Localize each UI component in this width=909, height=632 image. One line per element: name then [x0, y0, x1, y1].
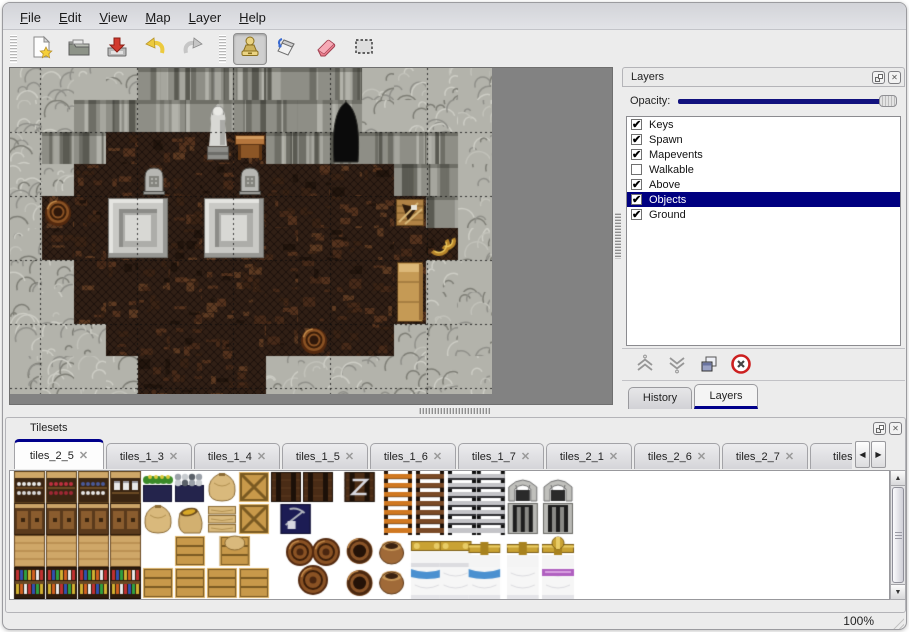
tab-close-icon[interactable]: ✕ [345, 450, 354, 463]
dock-tab-layers[interactable]: Layers [694, 384, 758, 409]
stamp-icon [237, 34, 263, 63]
toolbar [3, 30, 906, 67]
tab-close-icon[interactable]: ✕ [79, 449, 88, 462]
layer-visibility-checkbox[interactable]: ✔ [631, 209, 642, 220]
scroll-up-button[interactable]: ▲ [891, 471, 905, 486]
layer-list: ✔Keys✔Spawn✔MapeventsWalkable✔Above✔Obje… [626, 116, 901, 346]
zoom-level: 100% [843, 614, 874, 628]
menu-layer[interactable]: Layer [180, 9, 231, 26]
layer-label: Mapevents [649, 149, 703, 161]
resize-grip[interactable] [884, 617, 904, 630]
layer-label: Keys [649, 119, 673, 131]
layer-label: Above [649, 179, 680, 191]
tileset-tab-tiles_[interactable]: tiles_✕ [810, 443, 852, 469]
tileset-tab-tiles_1_5[interactable]: tiles_1_5✕ [282, 443, 368, 469]
tileset-tab-tiles_1_6[interactable]: tiles_1_6✕ [370, 443, 456, 469]
tab-close-icon[interactable]: ✕ [169, 450, 178, 463]
close-panel-icon[interactable]: ✕ [888, 71, 901, 84]
layer-visibility-checkbox[interactable]: ✔ [631, 134, 642, 145]
opacity-slider[interactable] [678, 94, 897, 108]
layers-panel-title: Layers [623, 71, 872, 83]
eraser-tool-button[interactable] [309, 33, 343, 65]
tab-scroll-buttons: ◀ ▶ [854, 441, 886, 468]
scroll-down-button[interactable]: ▼ [891, 584, 905, 599]
map-view[interactable] [9, 67, 613, 405]
layer-visibility-checkbox[interactable]: ✔ [631, 179, 642, 190]
tileset-tab-tiles_2_5[interactable]: tiles_2_5✕ [14, 439, 104, 469]
menu-view[interactable]: View [90, 9, 136, 26]
tab-close-icon[interactable]: ✕ [697, 450, 706, 463]
opacity-label: Opacity: [622, 95, 678, 107]
tab-close-icon[interactable]: ✕ [433, 450, 442, 463]
tab-close-icon[interactable]: ✕ [609, 450, 618, 463]
tab-close-icon[interactable]: ✕ [257, 450, 266, 463]
layers-panel-titlebar: Layers ✕ [622, 67, 905, 87]
undo-icon [142, 34, 168, 63]
float-panel-icon[interactable] [872, 71, 885, 84]
opacity-slider-track[interactable] [678, 99, 897, 104]
raise-layer-button[interactable] [632, 353, 658, 377]
eraser-icon [313, 34, 339, 63]
raise-layer-icon [634, 363, 656, 378]
layer-visibility-checkbox[interactable]: ✔ [631, 149, 642, 160]
save-button[interactable] [100, 33, 134, 65]
tab-close-icon[interactable]: ✕ [785, 450, 794, 463]
tileset-tab-label: tiles_2_6 [648, 451, 692, 463]
open-button[interactable] [62, 33, 96, 65]
layer-label: Objects [649, 194, 686, 206]
layer-visibility-checkbox[interactable]: ✔ [631, 119, 642, 130]
tileset-tab-label: tiles_1_5 [296, 451, 340, 463]
menu-bar: FileEditViewMapLayerHelp [3, 3, 906, 30]
duplicate-layer-button[interactable] [696, 353, 722, 377]
tileset-tab-label: tiles_2_1 [560, 451, 604, 463]
layer-label: Ground [649, 209, 686, 221]
redo-icon [180, 34, 206, 63]
tilesets-titlebar: Tilesets ✕ [6, 418, 905, 438]
tileset-canvas[interactable] [10, 471, 874, 599]
tab-close-icon[interactable]: ✕ [521, 450, 530, 463]
tileset-tab-label: tiles_1_4 [208, 451, 252, 463]
save-icon [104, 34, 130, 63]
menu-help[interactable]: Help [230, 9, 275, 26]
layer-actions [622, 348, 905, 381]
tileset-tab-tiles_2_1[interactable]: tiles_2_1✕ [546, 443, 632, 469]
layer-visibility-checkbox[interactable]: ✔ [631, 194, 642, 205]
splitter-grip[interactable] [615, 213, 621, 259]
tileset-tab-label: tiles_2_7 [736, 451, 780, 463]
tileset-tab-label: tiles_1_6 [384, 451, 428, 463]
opacity-slider-handle[interactable] [879, 95, 897, 107]
dock-tab-history[interactable]: History [628, 387, 692, 409]
layer-row-spawn[interactable]: ✔Spawn [627, 132, 900, 147]
lower-layer-button[interactable] [664, 353, 690, 377]
opacity-row: Opacity: [622, 88, 905, 114]
layer-row-walkable[interactable]: Walkable [627, 162, 900, 177]
scrollbar-thumb[interactable] [892, 487, 904, 583]
duplicate-layer-icon [698, 363, 720, 378]
layer-row-mapevents[interactable]: ✔Mapevents [627, 147, 900, 162]
tileset-scrollbar[interactable]: ▲ ▼ [890, 470, 906, 600]
layer-row-ground[interactable]: ✔Ground [627, 207, 900, 222]
layer-visibility-checkbox[interactable] [631, 164, 642, 175]
tileset-tab-label: tiles_ [833, 451, 852, 463]
toolbar-drag-handle[interactable] [219, 35, 226, 63]
menu-file[interactable]: File [11, 9, 50, 26]
status-bar: 100% [3, 613, 906, 630]
layers-panel: Layers ✕ Opacity: ✔Keys✔Spawn✔MapeventsW… [622, 67, 905, 415]
layer-label: Spawn [649, 134, 683, 146]
tilesets-panel: Tilesets ✕ tiles_2_5✕tiles_1_3✕tiles_1_4… [5, 417, 906, 613]
stamp-tool-button[interactable] [233, 33, 267, 65]
app-window: FileEditViewMapLayerHelp Layers ✕ Opacit… [2, 2, 907, 630]
layer-label: Walkable [649, 164, 694, 176]
float-panel-icon[interactable] [873, 422, 886, 435]
redo-button[interactable] [176, 33, 210, 65]
tileset-tab-tiles_1_4[interactable]: tiles_1_4✕ [194, 443, 280, 469]
map-canvas[interactable] [10, 68, 492, 394]
tab-scroll-right-button[interactable]: ▶ [871, 441, 886, 468]
menu-map[interactable]: Map [136, 9, 179, 26]
vertical-splitter[interactable] [613, 67, 622, 405]
close-panel-icon[interactable]: ✕ [889, 422, 902, 435]
tileset-tab-label: tiles_1_3 [120, 451, 164, 463]
toolbar-drag-handle[interactable] [10, 35, 17, 63]
tileset-tab-tiles_1_3[interactable]: tiles_1_3✕ [106, 443, 192, 469]
tilesets-panel-title: Tilesets [6, 422, 873, 434]
tileset-tab-bar: tiles_2_5✕tiles_1_3✕tiles_1_4✕tiles_1_5✕… [14, 439, 852, 469]
fill-bucket-icon [275, 34, 301, 63]
tileset-palette[interactable] [9, 470, 890, 600]
dock-tab-bar: HistoryLayers [628, 383, 760, 409]
delete-layer-button[interactable] [728, 353, 754, 377]
tileset-tab-label: tiles_1_7 [472, 451, 516, 463]
new-file-icon [28, 34, 54, 63]
tab-scroll-left-button[interactable]: ◀ [855, 441, 870, 468]
tileset-tab-tiles_2_7[interactable]: tiles_2_7✕ [722, 443, 808, 469]
layer-row-objects[interactable]: ✔Objects [627, 192, 900, 207]
delete-layer-icon [730, 363, 752, 378]
layer-row-keys[interactable]: ✔Keys [627, 117, 900, 132]
undo-button[interactable] [138, 33, 172, 65]
fill-tool-button[interactable] [271, 33, 305, 65]
layer-row-above[interactable]: ✔Above [627, 177, 900, 192]
selection-icon [351, 34, 377, 63]
menu-edit[interactable]: Edit [50, 9, 90, 26]
tileset-tab-tiles_1_7[interactable]: tiles_1_7✕ [458, 443, 544, 469]
splitter-grip[interactable] [419, 408, 491, 414]
open-folder-icon [66, 34, 92, 63]
select-tool-button[interactable] [347, 33, 381, 65]
tileset-tab-label: tiles_2_5 [30, 450, 74, 462]
tileset-tab-tiles_2_6[interactable]: tiles_2_6✕ [634, 443, 720, 469]
lower-layer-icon [666, 363, 688, 378]
new-button[interactable] [24, 33, 58, 65]
